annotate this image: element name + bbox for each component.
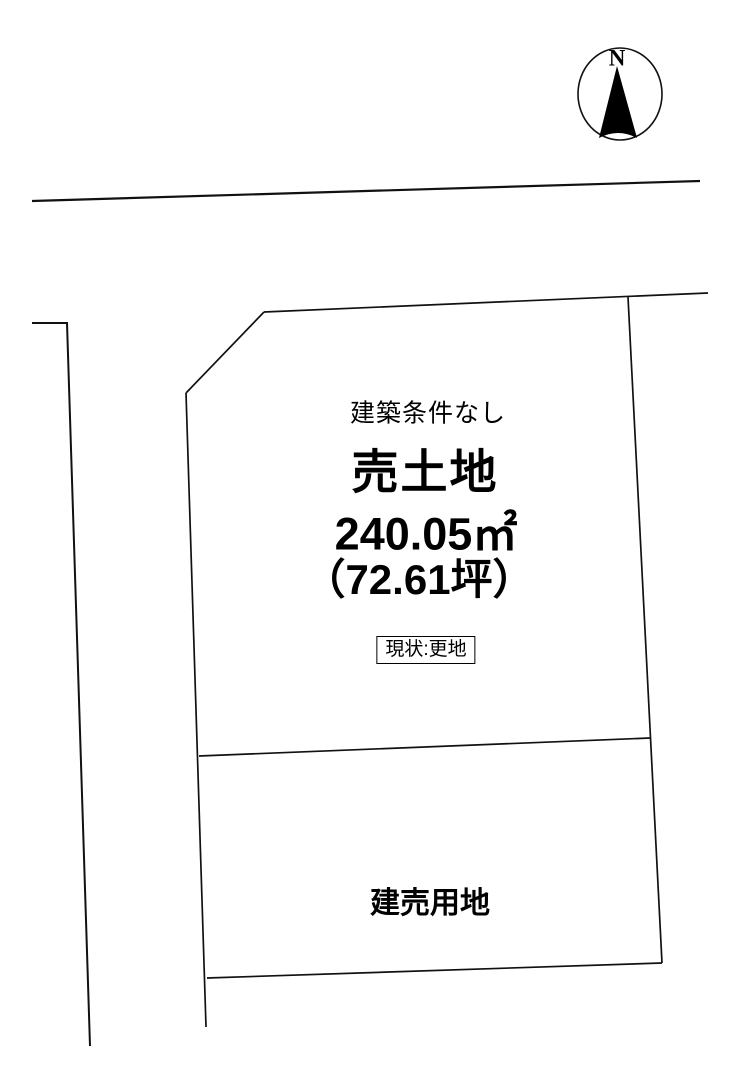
compass-north-label: N <box>609 47 626 70</box>
parcel-left-boundary <box>186 393 206 1027</box>
parcel-bottom-boundary <box>207 963 662 978</box>
area-sqm-label: 240.05㎡ <box>335 512 518 557</box>
compass-needle-icon <box>599 66 637 138</box>
lower-parcel-label: 建売用地 <box>370 889 490 919</box>
parcel-right-boundary <box>628 297 662 963</box>
current-status-badge: 現状:更地 <box>376 636 475 664</box>
parcel-divider-line <box>199 738 650 756</box>
side-road-line <box>32 323 90 1046</box>
plot-map-canvas: N 建築条件なし 売土地 240.05㎡ （72.61坪） 現状:更地 建売用地 <box>0 0 740 1081</box>
area-tsubo-label: （72.61坪） <box>303 559 534 601</box>
parcel-title: 売土地 <box>352 449 499 496</box>
building-condition-label: 建築条件なし <box>350 402 506 427</box>
parcel-chamfer-boundary <box>186 312 264 393</box>
parcel-top-boundary <box>264 293 708 312</box>
top-road-line <box>32 181 700 201</box>
